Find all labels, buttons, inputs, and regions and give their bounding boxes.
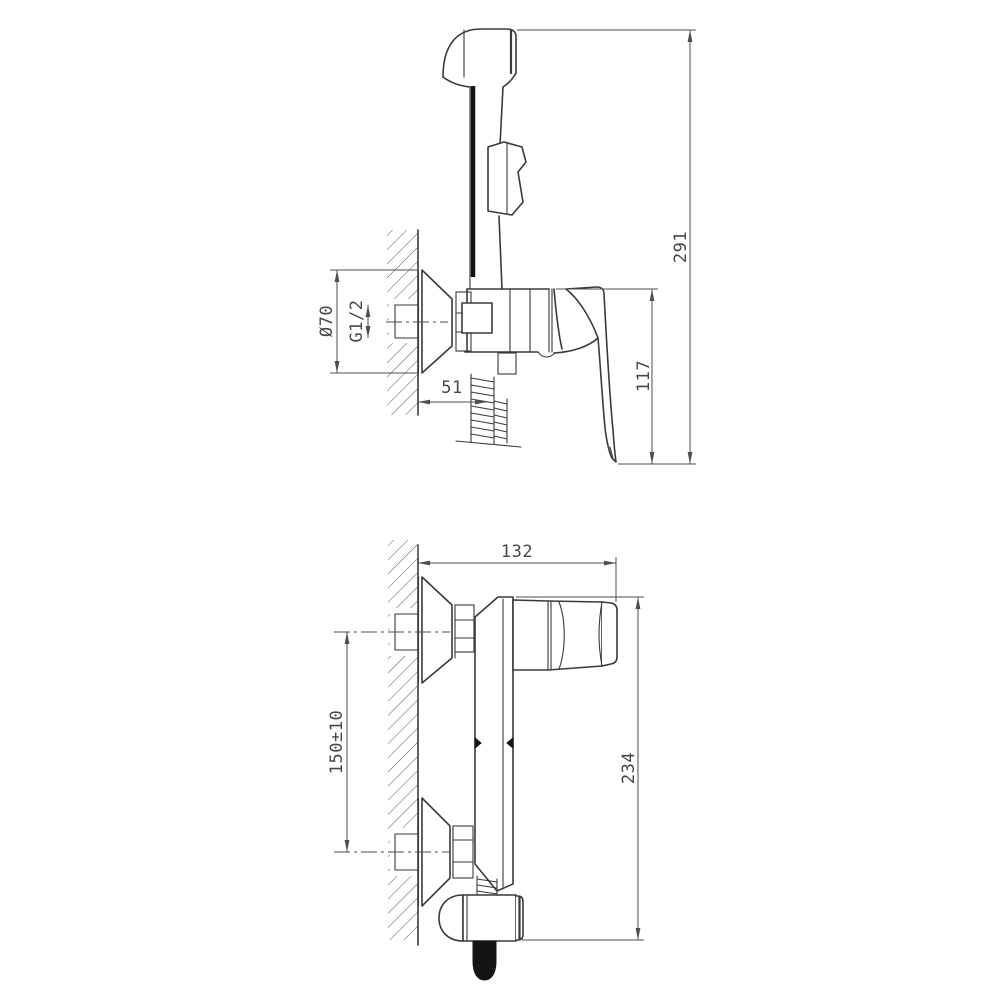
wall-flange-top	[419, 577, 475, 683]
shower-mixer-dimension-drawing: Ø70 G1/2 51 117 291	[0, 0, 1000, 1000]
wall-section-front	[388, 540, 418, 945]
valve-joint-lines	[510, 289, 552, 352]
wall-cutout-side	[389, 299, 418, 343]
handle-end-cap	[602, 602, 617, 666]
technical-drawing-page: Ø70 G1/2 51 117 291	[0, 0, 1000, 1000]
dimension-overall-width: 132	[418, 542, 616, 602]
dimension-wall-offset: 51	[418, 378, 487, 402]
dim-label-lever-height: 117	[634, 360, 654, 392]
hand-sprayer-front	[439, 895, 523, 980]
dim-label-total-height: 291	[671, 231, 691, 263]
lever-handle-front	[513, 600, 617, 670]
hose-coils-left	[471, 378, 494, 438]
dimension-total-height: 291	[517, 30, 696, 464]
hand-sprayer-side	[443, 29, 526, 289]
sprayer-nozzle	[473, 941, 496, 980]
hex-nut-top	[455, 605, 474, 652]
sprayer-neck-left	[443, 77, 470, 87]
dimension-thread-size: G1/2	[347, 300, 368, 343]
front-view-drawing: 132 234 150±10	[327, 540, 644, 980]
hose-outlet-nut	[498, 353, 516, 374]
sprayer-head-dome	[443, 29, 516, 77]
dim-label-overall-height: 234	[619, 752, 639, 784]
sprayer-body-front	[463, 895, 516, 941]
side-view-drawing: Ø70 G1/2 51 117 291	[317, 29, 696, 464]
wall-hatch-front	[388, 540, 418, 940]
mixer-body-front	[475, 597, 513, 891]
hose-break-line	[456, 441, 521, 447]
escutcheon-cone-top	[422, 577, 452, 683]
dim-label-wall-offset: 51	[441, 378, 462, 398]
valve-underside-bulge	[538, 352, 555, 357]
cartridge-cap-arc	[566, 289, 598, 338]
lever-handle-side	[566, 287, 616, 462]
handle-cylinder	[513, 600, 602, 670]
cartridge-cap-edge	[554, 289, 562, 349]
dimension-inlet-spacing: 150±10	[327, 632, 347, 852]
dim-label-thread-size: G1/2	[347, 300, 367, 343]
body-plate-outline	[475, 597, 513, 891]
dim-label-inlet-spacing: 150±10	[327, 710, 347, 774]
sprayer-neck-right	[503, 73, 516, 87]
shower-hose-side	[456, 374, 521, 447]
inlet-block-side	[462, 303, 492, 333]
hose-coils-right	[494, 401, 507, 439]
dim-label-overall-width: 132	[501, 542, 533, 562]
dim-label-flange-diameter: Ø70	[317, 305, 337, 337]
extension-lines	[517, 30, 696, 464]
sprayer-dome-front	[439, 895, 463, 941]
hex-nut-bottom	[453, 826, 473, 878]
mixer-valve-side	[462, 287, 616, 462]
